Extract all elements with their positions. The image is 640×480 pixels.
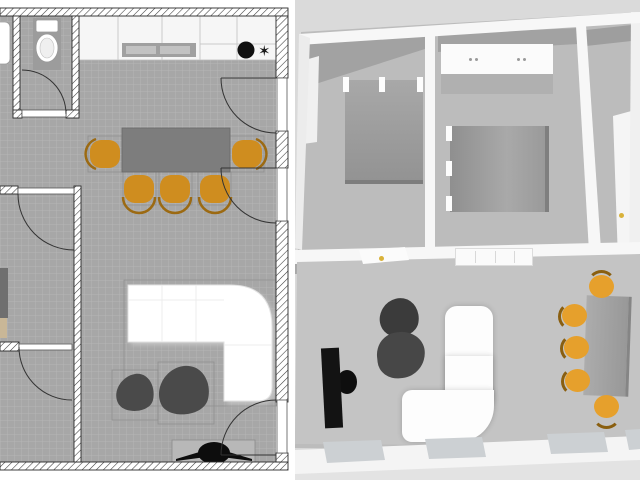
plan-2d-canvas: ✶ xyxy=(0,0,290,480)
dining-table-3d[interactable] xyxy=(583,295,631,397)
bed-2[interactable] xyxy=(450,126,549,212)
toilet-icon[interactable] xyxy=(33,18,61,70)
faucet-icon: ✶ xyxy=(258,42,271,60)
washbasin-partial[interactable] xyxy=(0,22,10,64)
bedpost xyxy=(343,77,349,92)
right-door-1[interactable] xyxy=(277,78,287,131)
door-handle xyxy=(379,256,384,261)
bedpost xyxy=(446,161,452,176)
door-handle xyxy=(619,213,624,218)
bed-partial[interactable] xyxy=(0,268,8,318)
wc-door[interactable] xyxy=(22,110,66,117)
plan-3d-panel xyxy=(295,0,640,480)
bedpost xyxy=(379,77,385,92)
bed-footboard xyxy=(0,318,7,338)
right-door-3[interactable] xyxy=(277,400,287,453)
kitchen-counter[interactable]: ✶ xyxy=(79,16,276,60)
floorplan-views: ✶ xyxy=(0,0,640,480)
cooktop-plate xyxy=(160,46,190,54)
kitchen-sink-icon[interactable] xyxy=(238,42,255,59)
wardrobe-front xyxy=(441,74,553,94)
dining-chair-3d[interactable] xyxy=(565,369,590,392)
tv-console[interactable] xyxy=(172,440,255,464)
bedroom-door[interactable] xyxy=(18,188,74,194)
wardrobe[interactable] xyxy=(441,44,553,74)
cooktop-plate xyxy=(126,46,156,54)
dining-table[interactable] xyxy=(122,128,230,172)
plan-2d-panel: ✶ xyxy=(0,0,290,480)
bedpost xyxy=(417,77,423,92)
dining-chair-3d[interactable] xyxy=(594,395,619,418)
sofa-section-horizontal[interactable] xyxy=(402,390,494,442)
bed-1[interactable] xyxy=(345,80,423,184)
bedpost xyxy=(446,196,452,211)
sideboard[interactable] xyxy=(455,248,533,266)
bedpost xyxy=(446,126,452,141)
dining-chair-3d[interactable] xyxy=(562,304,587,327)
dining-chair-3d[interactable] xyxy=(589,275,614,298)
tv-icon xyxy=(198,442,230,464)
dining-chair-3d[interactable] xyxy=(564,336,589,359)
right-door-2[interactable] xyxy=(277,168,287,221)
storage-door[interactable] xyxy=(19,344,72,350)
